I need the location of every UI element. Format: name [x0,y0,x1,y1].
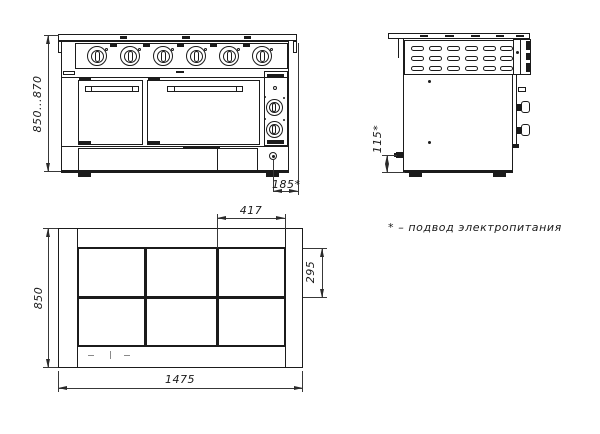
door-handle-left [85,86,139,92]
foot [78,173,91,177]
panel-hatch-top [267,74,284,78]
arrowhead [46,228,50,237]
clamp-mark [471,35,480,37]
clamp-mark [244,36,251,39]
panel-tick-mark [143,44,150,47]
arrowhead [217,216,226,220]
clamp-mark [445,35,454,37]
vent-louver [500,46,513,51]
plinth-top-line [61,146,289,147]
foot [409,173,422,177]
oven-knob-side [521,124,530,136]
panel-side-hatch [526,63,531,72]
clamp-mark [182,36,190,39]
panel-tick-mark [177,44,184,47]
knob-indicator-dot [237,48,240,51]
knob-dot [264,118,266,120]
dim-inlet-height-label: 115* [372,121,384,157]
screw-dot [428,141,431,144]
worktop-slab [58,34,297,41]
vent-louver [483,56,496,61]
vent-louver [447,56,460,61]
oven-knob-side [521,101,530,113]
dim-inlet-offset-label: 185* [272,179,300,191]
grid-line-h [77,296,286,299]
plinth-divider [217,148,218,172]
hinge-mark [79,78,91,81]
rail-mark [176,71,184,73]
rail-latch [63,71,75,75]
vent-louver [429,66,442,71]
burner-knob-grip [128,51,133,62]
grid-line-h [77,247,286,249]
power-inlet-gland [396,152,404,158]
pilot-lamp-side [518,87,526,92]
dimension-line [48,228,49,368]
door-handle-right [167,86,243,92]
clamp-mark [420,35,428,37]
vent-louver [411,66,424,71]
vent-louver [411,56,424,61]
knob-indicator-dot [204,48,207,51]
grid-line-v [144,247,147,347]
burner-knob-grip [260,51,265,62]
dimension-line [217,218,285,219]
arrowhead [294,386,303,390]
dim-burner-width-label: 417 [235,205,267,217]
arrowhead [320,248,324,257]
oven-knob-grip [272,125,276,134]
grid-line-h [77,345,286,347]
clamp-mark [516,35,524,37]
burner-knob-grip [194,51,199,62]
grid-line-v [216,247,219,347]
pilot-lamp [273,86,277,90]
panel-side-hatch [526,53,531,60]
arrowhead [320,289,324,298]
panel-side-dot [516,51,519,54]
burner-knob-grip [95,51,100,62]
arrowhead [46,359,50,368]
dimension-line [48,35,49,172]
handle-end-line [174,86,175,92]
knob-indicator-dot [105,48,108,51]
panel-tick-mark [110,44,117,47]
vent-louver [447,66,460,71]
vent-louver [500,66,513,71]
front-wall-line [512,74,513,173]
vent-louver [465,66,478,71]
front-panel-line [516,75,517,148]
vent-louver [500,56,513,61]
worktop-slab-side [388,33,530,39]
hinge-mark [148,141,160,144]
worktop-end-cap-right [293,41,297,53]
vent-louver [429,56,442,61]
panel-side-hatch [526,41,531,50]
knob-dot [283,97,285,99]
vent-louver [411,46,424,51]
dim-overall-height-label: 850...870 [32,69,44,139]
vent-louver [483,46,496,51]
vent-louver [447,46,460,51]
handle-end-line [132,86,133,92]
vent-louver [465,46,478,51]
base-band [61,170,289,173]
dimension-line [58,388,303,389]
arrowhead [46,163,50,172]
extension-line [285,214,286,229]
vent-louver [465,56,478,61]
extension-line [298,43,299,195]
handle-end-line [236,86,237,92]
burner-knob-grip [161,51,166,62]
band-mark [88,355,94,356]
foot [493,173,506,177]
dim-burner-depth-label: 295 [305,255,317,289]
arrowhead [58,386,67,390]
hinge-mark [148,78,160,81]
rail-line [61,77,289,78]
grid-line-v [77,247,79,347]
knob-dot [264,96,266,98]
knob-indicator-dot [171,48,174,51]
vent-louver [483,66,496,71]
dim-top-depth-label: 850 [33,281,45,315]
hinge-mark [79,141,91,144]
panel-tick-mark [210,44,217,47]
handle-end-line [91,86,92,92]
band-mark [124,355,130,356]
grid-line-v [284,247,286,347]
panel-side-line [520,39,521,75]
arrowhead [276,216,285,220]
clamp-mark [496,35,504,37]
panel-hatch-bottom [267,140,284,144]
drawing-sheet: 850...870 185* [0,0,600,434]
vent-louver [429,46,442,51]
oven-knob-grip [272,103,276,112]
knob-indicator-dot [270,48,273,51]
arrowhead [385,155,389,164]
dim-top-width-label: 1475 [155,374,205,386]
clamp-mark [120,36,127,39]
panel-tick-mark [243,44,250,47]
power-inlet-center [272,155,275,158]
knob-indicator-dot [138,48,141,51]
arrowhead [385,164,389,173]
screw-dot [428,80,431,83]
front-panel-hatch [512,144,519,148]
burner-knob-grip [227,51,232,62]
plinth-panel [78,148,258,172]
rear-bracket [398,39,399,58]
footnote-power-supply: * – подвод электропитания [388,221,562,234]
arrowhead [46,35,50,44]
band-mark [110,351,111,359]
knob-dot [283,119,285,121]
